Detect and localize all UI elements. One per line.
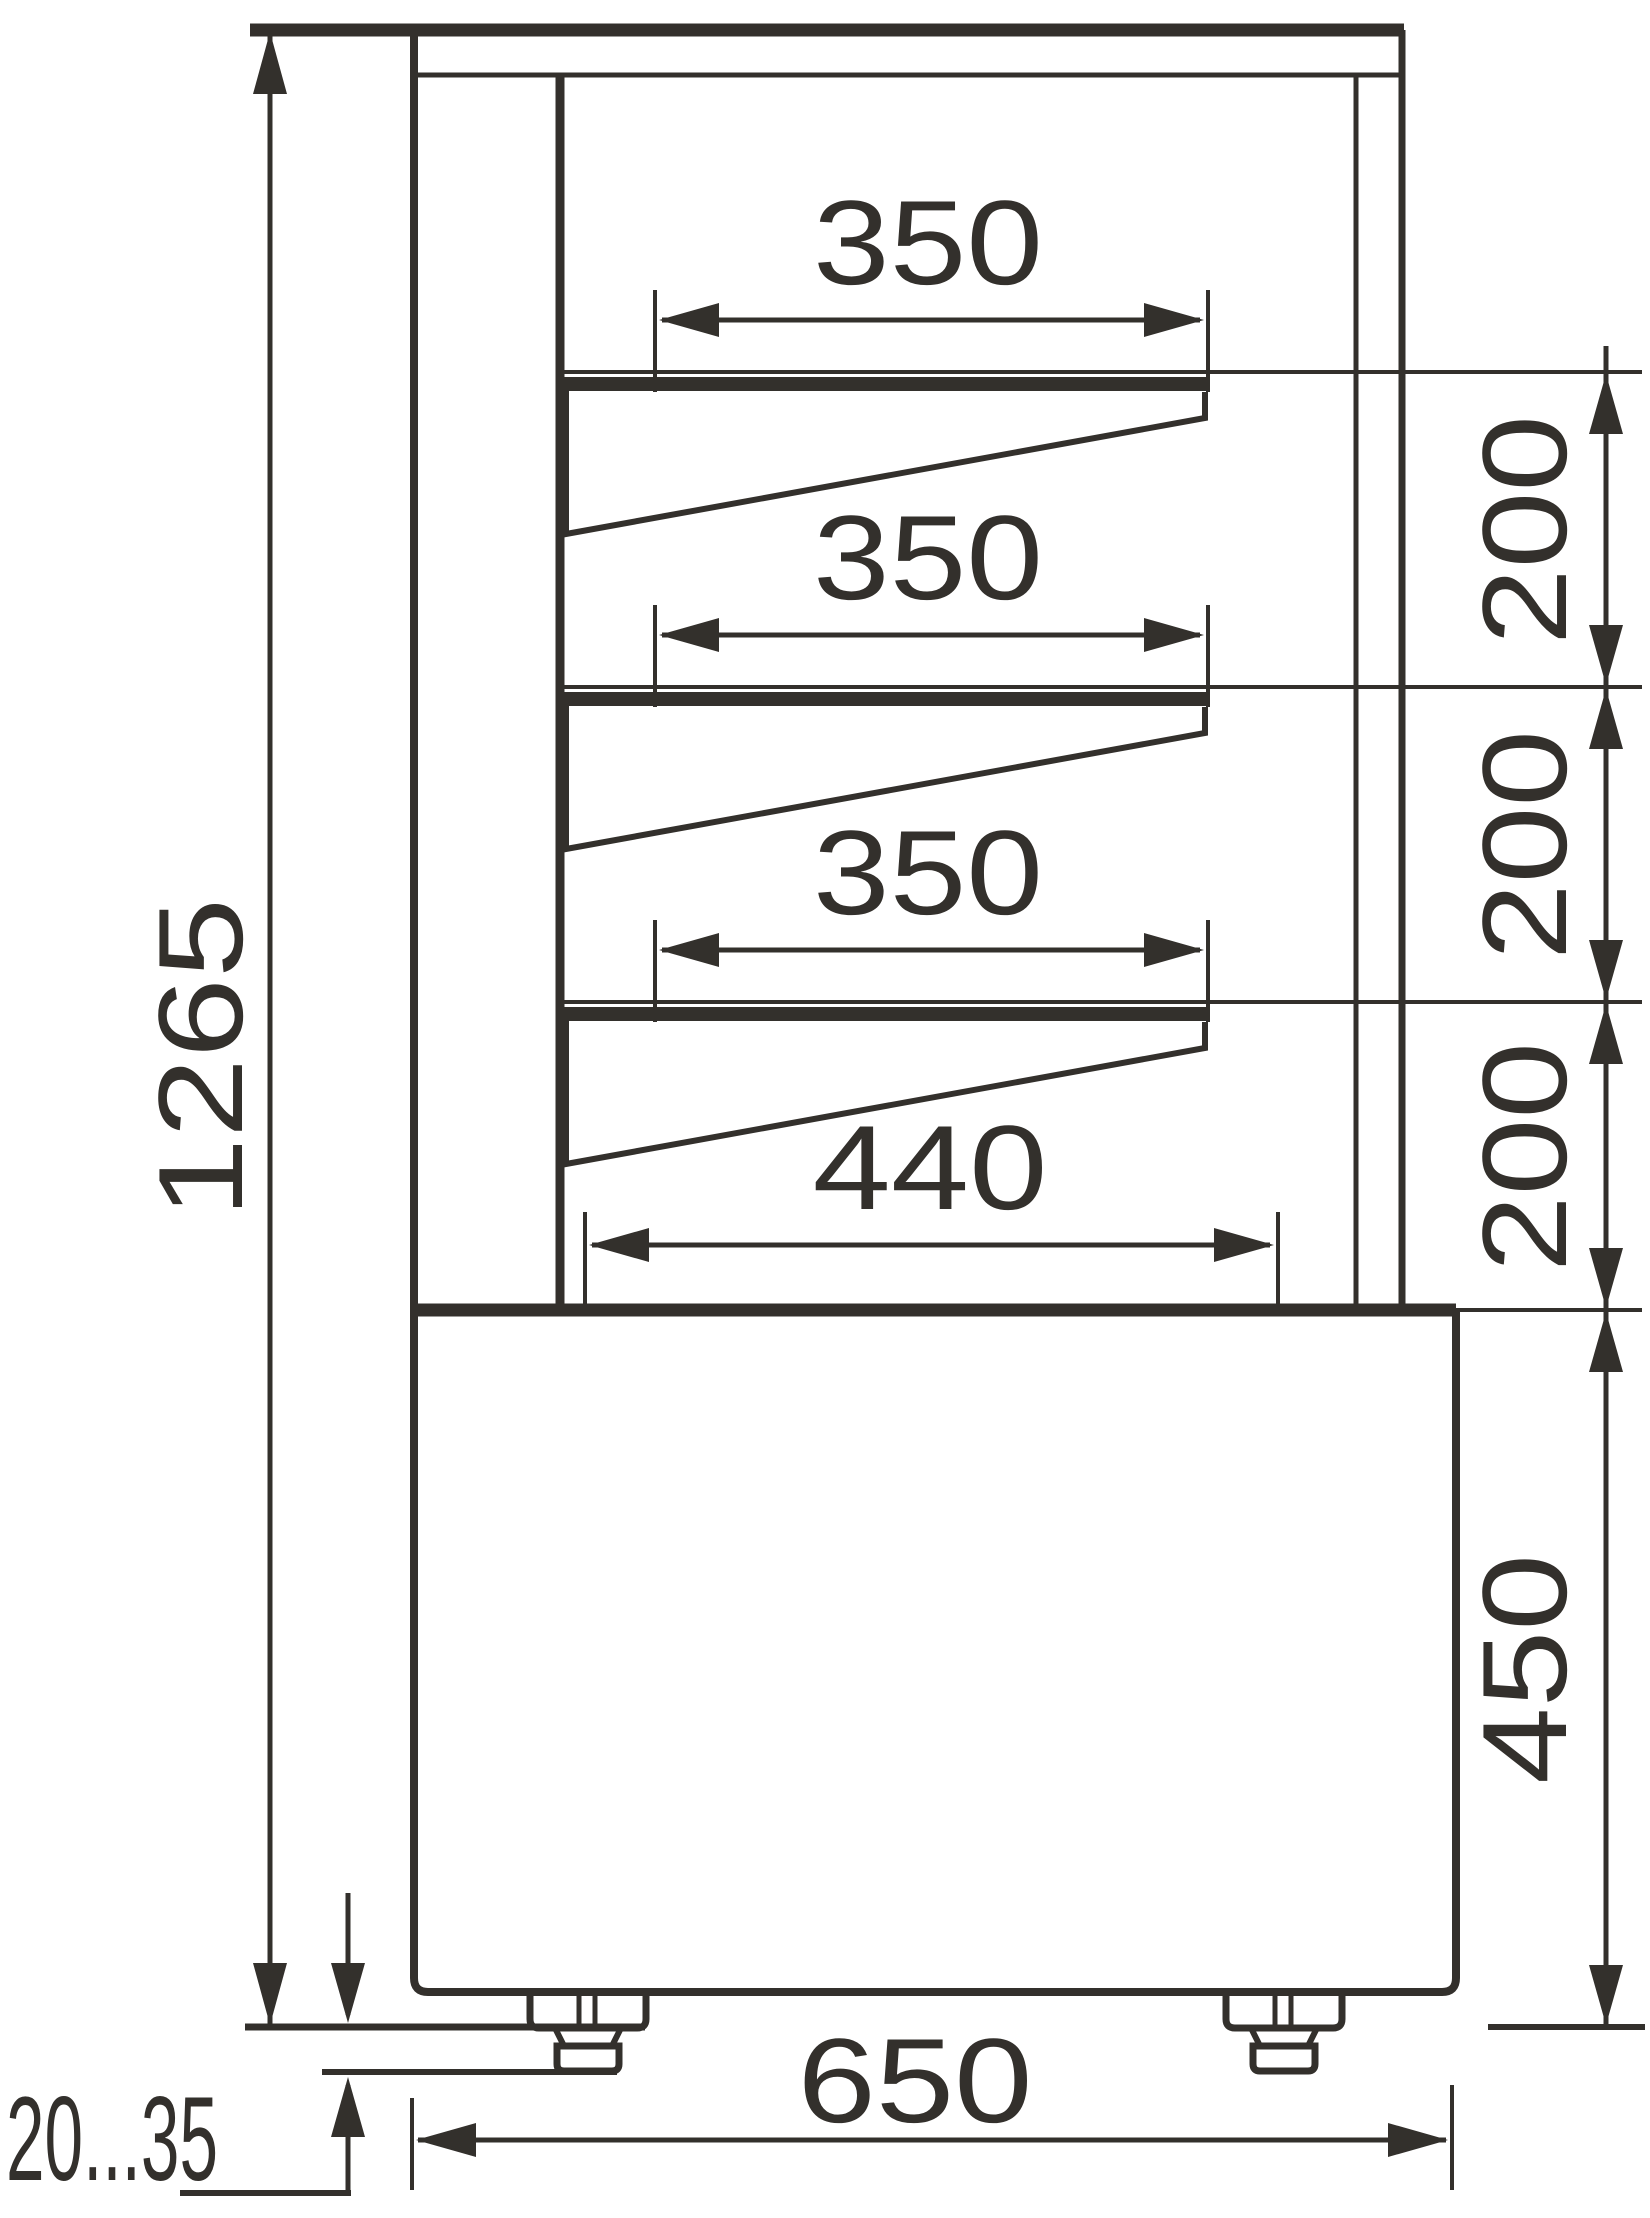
arrow-up-icon <box>1589 1004 1623 1064</box>
arrow-up-icon <box>331 2077 365 2137</box>
dim-bottom-deck-width: 440 <box>585 1101 1278 1316</box>
dim-chain-right: 200 200 200 450 <box>1458 346 1623 2027</box>
foot-left-pad <box>557 2046 619 2071</box>
arrow-left-icon <box>659 933 719 967</box>
foot-right-pad <box>1253 2046 1315 2071</box>
dim-spacing-2-label: 200 <box>1458 730 1592 960</box>
arrow-right-icon <box>1144 933 1204 967</box>
dim-shelf-2-width-label: 350 <box>813 491 1043 625</box>
arrow-left-icon <box>416 2123 476 2157</box>
dim-shelf-3-width-label: 350 <box>813 806 1043 940</box>
dim-overall-height: 1265 <box>134 32 287 2025</box>
dim-shelf-1-width-label: 350 <box>813 176 1043 310</box>
arrow-right-icon <box>1144 618 1204 652</box>
arrow-up-icon <box>1589 374 1623 434</box>
arrow-left-icon <box>589 1228 649 1262</box>
dim-shelf-3-width: 350 <box>655 806 1208 1022</box>
arrow-up-icon <box>1589 689 1623 749</box>
adjustable-foot-right <box>1226 1992 1342 2071</box>
dim-foot-adjust-label: 20...35 <box>6 2072 218 2206</box>
arrow-up-icon <box>1589 1312 1623 1372</box>
arrow-left-icon <box>659 303 719 337</box>
dim-overall-height-label: 1265 <box>134 898 268 1218</box>
dim-base-depth-label: 650 <box>798 2014 1033 2148</box>
arrow-left-icon <box>659 618 719 652</box>
arrow-right-icon <box>1144 303 1204 337</box>
arrow-down-icon <box>331 1963 365 2023</box>
foot-left-screw <box>579 1994 595 2026</box>
foot-left-mount-block <box>530 1992 646 2028</box>
technical-drawing-page: 1265 350 350 350 440 <box>0 0 1650 2218</box>
adjustable-foot-left <box>530 1992 646 2071</box>
arrow-right-icon <box>1388 2123 1448 2157</box>
dim-spacing-3-label: 200 <box>1458 1042 1592 1272</box>
arrow-down-icon <box>1589 940 1623 1000</box>
foot-right-mount-block <box>1226 1992 1342 2028</box>
dim-spacing-1-label: 200 <box>1458 415 1592 645</box>
dim-shelf-1-width: 350 <box>655 176 1208 392</box>
arrow-right-icon <box>1214 1228 1274 1262</box>
arrow-up-icon <box>253 32 287 94</box>
dim-bottom-deck-width-label: 440 <box>813 1101 1048 1235</box>
arrow-down-icon <box>1589 1248 1623 1308</box>
dim-foot-adjust: 20...35 <box>6 1893 365 2206</box>
foot-right-screw <box>1275 1994 1291 2026</box>
arrow-down-icon <box>1589 625 1623 685</box>
dim-base-depth: 650 <box>412 2014 1452 2190</box>
display-case-drawing: 1265 350 350 350 440 <box>0 0 1650 2218</box>
arrow-down-icon <box>253 1963 287 2025</box>
dim-shelf-2-width: 350 <box>655 491 1208 707</box>
arrow-down-icon <box>1589 1965 1623 2025</box>
dim-base-height-label: 450 <box>1458 1554 1592 1784</box>
